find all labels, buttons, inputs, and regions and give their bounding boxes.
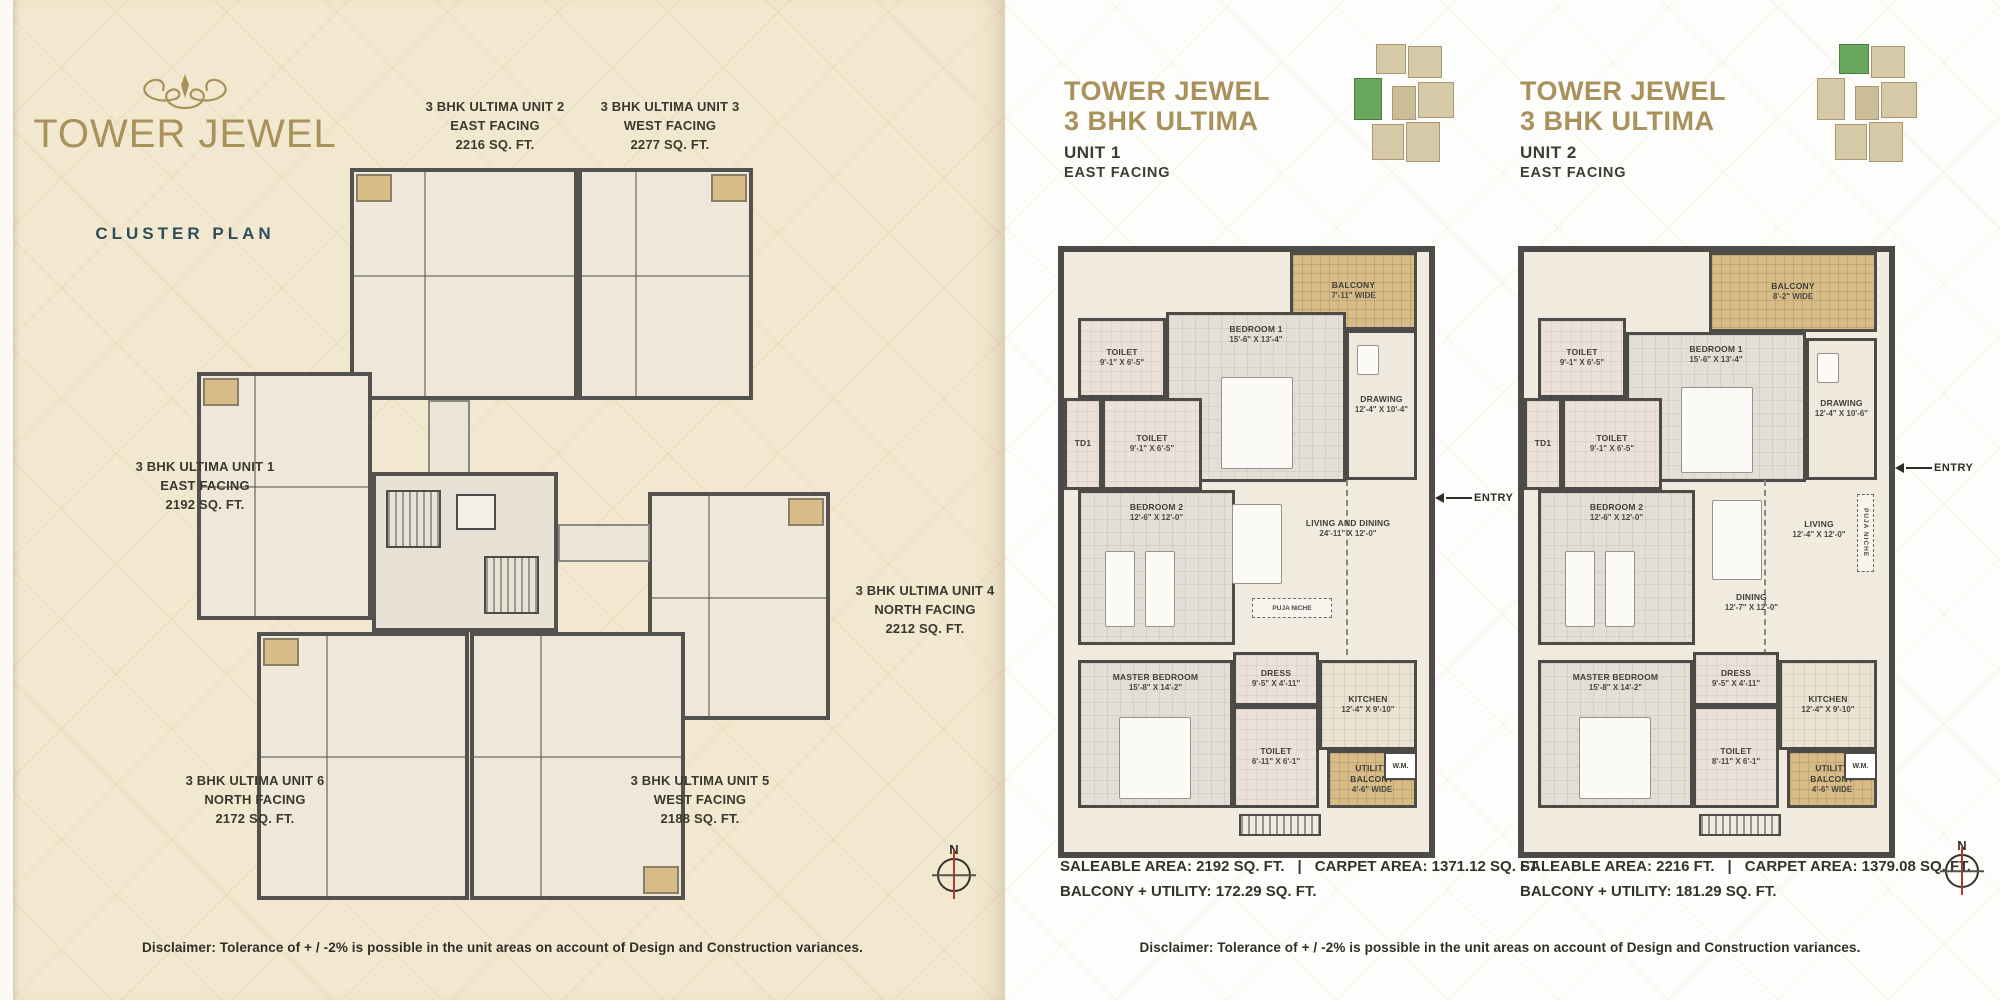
room-toilet-3: TOILET 8'-11" X 6'-1" — [1693, 706, 1779, 808]
unit-2-header: TOWER JEWEL 3 BHK ULTIMA UNIT 2 EAST FAC… — [1520, 76, 1726, 181]
entrance-step — [1699, 814, 1781, 836]
unit-3-label: 3 BHK ULTIMA UNIT 3 WEST FACING 2277 SQ.… — [565, 98, 775, 155]
zone-dining: DINING 12'-7" X 12'-0" — [1699, 584, 1804, 622]
entry-marker: ENTRY — [1895, 462, 1973, 474]
north-compass: N — [932, 842, 976, 892]
brochure-page: TOWER JEWEL CLUSTER PLAN 3 BHK ULTIMA UN… — [0, 0, 2000, 1000]
keyplan-block — [1376, 44, 1406, 74]
room-kitchen: KITCHEN 12'-4" X 9'-10" — [1319, 660, 1417, 750]
room-td1: TD1 — [1524, 398, 1562, 490]
balcony-utility-area: BALCONY + UTILITY: 172.29 SQ. FT. — [1060, 883, 1541, 900]
dining-table-icon — [1712, 500, 1762, 580]
dining-table-icon — [1232, 504, 1282, 584]
entry-line — [1446, 497, 1472, 499]
unit-1-header: TOWER JEWEL 3 BHK ULTIMA UNIT 1 EAST FAC… — [1064, 76, 1270, 181]
room-toilet-2: TOILET 9'-1" X 6'-5" — [1562, 398, 1662, 490]
unit-1-label: 3 BHK ULTIMA UNIT 1 EAST FACING 2192 SQ.… — [95, 458, 315, 515]
staircase — [484, 556, 539, 614]
keyplan-block — [1817, 78, 1845, 120]
keyplan-block — [1871, 46, 1905, 78]
compass-dial-icon — [1945, 854, 1979, 888]
unit-6-label: 3 BHK ULTIMA UNIT 6 NORTH FACING 2172 SQ… — [145, 772, 365, 829]
keyplan-block — [1408, 46, 1442, 78]
cluster-plan-subtitle: CLUSTER PLAN — [25, 224, 345, 244]
room-master-bedroom: MASTER BEDROOM 15'-8" X 14'-2" — [1538, 660, 1693, 808]
keyplan-block — [1406, 122, 1440, 162]
puja-niche: PUJA NICHE — [1857, 494, 1874, 572]
bed-icon — [1681, 387, 1753, 473]
sofa-icon — [1357, 345, 1379, 375]
zone-living-dining: LIVING AND DINING 24'-11" X 12'-0" — [1282, 508, 1414, 550]
room-td1: TD1 — [1064, 398, 1102, 490]
divider: | — [1727, 858, 1731, 875]
balcony-patch — [711, 174, 747, 202]
unit-2-floor-plan: BALCONY 8'-2" WIDE TOILET 9'-1" X 6'-5" … — [1518, 246, 1895, 858]
keyplan-block — [1869, 122, 1903, 162]
cluster-wing-unit-2 — [350, 168, 578, 400]
key-plan-unit-1 — [1352, 42, 1467, 177]
entry-arrow-icon — [1435, 493, 1444, 503]
cluster-wing-unit-6 — [257, 632, 469, 900]
balcony-utility-area: BALCONY + UTILITY: 181.29 SQ. FT. — [1520, 883, 1971, 900]
balcony-patch — [643, 866, 679, 894]
room-drawing: DRAWING 12'-4" X 10'-6" — [1806, 338, 1877, 480]
bed-icon — [1605, 551, 1635, 627]
bed-icon — [1579, 717, 1651, 799]
room-bedroom-2: BEDROOM 2 12'-6" X 12'-0" — [1538, 490, 1695, 645]
tower-title: TOWER JEWEL — [25, 112, 345, 157]
entry-line — [1906, 467, 1932, 469]
cluster-core — [372, 472, 558, 632]
keyplan-highlight-unit-2 — [1839, 44, 1869, 74]
keyplan-highlight-unit-1 — [1354, 78, 1382, 120]
divider: | — [1298, 858, 1302, 875]
cluster-plan-panel: TOWER JEWEL CLUSTER PLAN 3 BHK ULTIMA UN… — [0, 0, 1005, 1000]
north-compass: N — [1940, 838, 1984, 888]
bed-icon — [1119, 717, 1191, 799]
zone-divider — [1764, 480, 1766, 655]
room-kitchen: KITCHEN 12'-4" X 9'-10" — [1779, 660, 1877, 750]
entry-arrow-icon — [1895, 463, 1904, 473]
balcony-patch — [263, 638, 299, 666]
entry-marker: ENTRY — [1435, 492, 1513, 504]
lift — [456, 494, 496, 530]
room-balcony: BALCONY 8'-2" WIDE — [1709, 252, 1877, 332]
keyplan-block — [1835, 124, 1867, 160]
room-toilet-2: TOILET 9'-1" X 6'-5" — [1102, 398, 1202, 490]
room-bedroom-2: BEDROOM 2 12'-6" X 12'-0" — [1078, 490, 1235, 645]
unit-4-label: 3 BHK ULTIMA UNIT 4 NORTH FACING 2212 SQ… — [830, 582, 1020, 639]
unit-1-floor-plan: BALCONY 7'-11" WIDE TOILET 9'-1" X 6'-5"… — [1058, 246, 1435, 858]
bed-icon — [1221, 377, 1293, 469]
keyplan-block — [1881, 82, 1917, 118]
puja-niche: PUJA NICHE — [1252, 598, 1332, 618]
balcony-patch — [203, 378, 239, 406]
staircase — [386, 490, 441, 548]
keyplan-core — [1855, 86, 1879, 120]
keyplan-block — [1372, 124, 1404, 160]
unit-plans-panel: TOWER JEWEL 3 BHK ULTIMA UNIT 1 EAST FAC… — [1005, 0, 2000, 1000]
balcony-patch — [356, 174, 392, 202]
room-dress: DRESS 9'-5" X 4'-11" — [1693, 652, 1779, 706]
washing-machine: W.M. — [1844, 752, 1877, 780]
room-toilet-1: TOILET 9'-1" X 6'-5" — [1078, 318, 1166, 398]
unit-2-stats: SALEABLE AREA: 2216 FT. | CARPET AREA: 1… — [1520, 858, 1971, 900]
balcony-patch — [788, 498, 824, 526]
bed-icon — [1145, 551, 1175, 627]
keyplan-core — [1392, 86, 1416, 120]
unit-5-label: 3 BHK ULTIMA UNIT 5 WEST FACING 2188 SQ.… — [590, 772, 810, 829]
key-plan-unit-2 — [1815, 42, 1930, 177]
room-drawing: DRAWING 12'-4" X 10'-4" — [1346, 330, 1417, 480]
cluster-wing-unit-5 — [470, 632, 685, 900]
saleable-area: SALEABLE AREA: 2216 FT. — [1520, 858, 1714, 875]
zone-living: LIVING 12'-4" X 12'-0" — [1769, 510, 1869, 550]
entrance-step — [1239, 814, 1321, 836]
unit-1-stats: SALEABLE AREA: 2192 SQ. FT. | CARPET ARE… — [1060, 858, 1541, 900]
cluster-corridor — [558, 524, 650, 562]
compass-dial-icon — [937, 858, 971, 892]
page-edge — [0, 0, 13, 1000]
sofa-icon — [1817, 353, 1839, 383]
keyplan-block — [1418, 82, 1454, 118]
bed-icon — [1565, 551, 1595, 627]
cluster-corridor — [428, 400, 470, 476]
carpet-area: CARPET AREA: 1371.12 SQ. FT. — [1315, 858, 1541, 875]
zone-divider — [1346, 480, 1348, 655]
disclaimer-right: Disclaimer: Tolerance of + / -2% is poss… — [1055, 940, 1945, 955]
saleable-area: SALEABLE AREA: 2192 SQ. FT. — [1060, 858, 1285, 875]
room-toilet-3: TOILET 6'-11" X 6'-1" — [1233, 706, 1319, 808]
cluster-wing-unit-3 — [578, 168, 753, 400]
carpet-area: CARPET AREA: 1379.08 SQ. FT. — [1745, 858, 1971, 875]
room-dress: DRESS 9'-5" X 4'-11" — [1233, 652, 1319, 706]
bed-icon — [1105, 551, 1135, 627]
disclaimer-left: Disclaimer: Tolerance of + / -2% is poss… — [0, 940, 1005, 955]
room-master-bedroom: MASTER BEDROOM 15'-8" X 14'-2" — [1078, 660, 1233, 808]
room-toilet-1: TOILET 9'-1" X 6'-5" — [1538, 318, 1626, 398]
washing-machine: W.M. — [1384, 752, 1417, 780]
